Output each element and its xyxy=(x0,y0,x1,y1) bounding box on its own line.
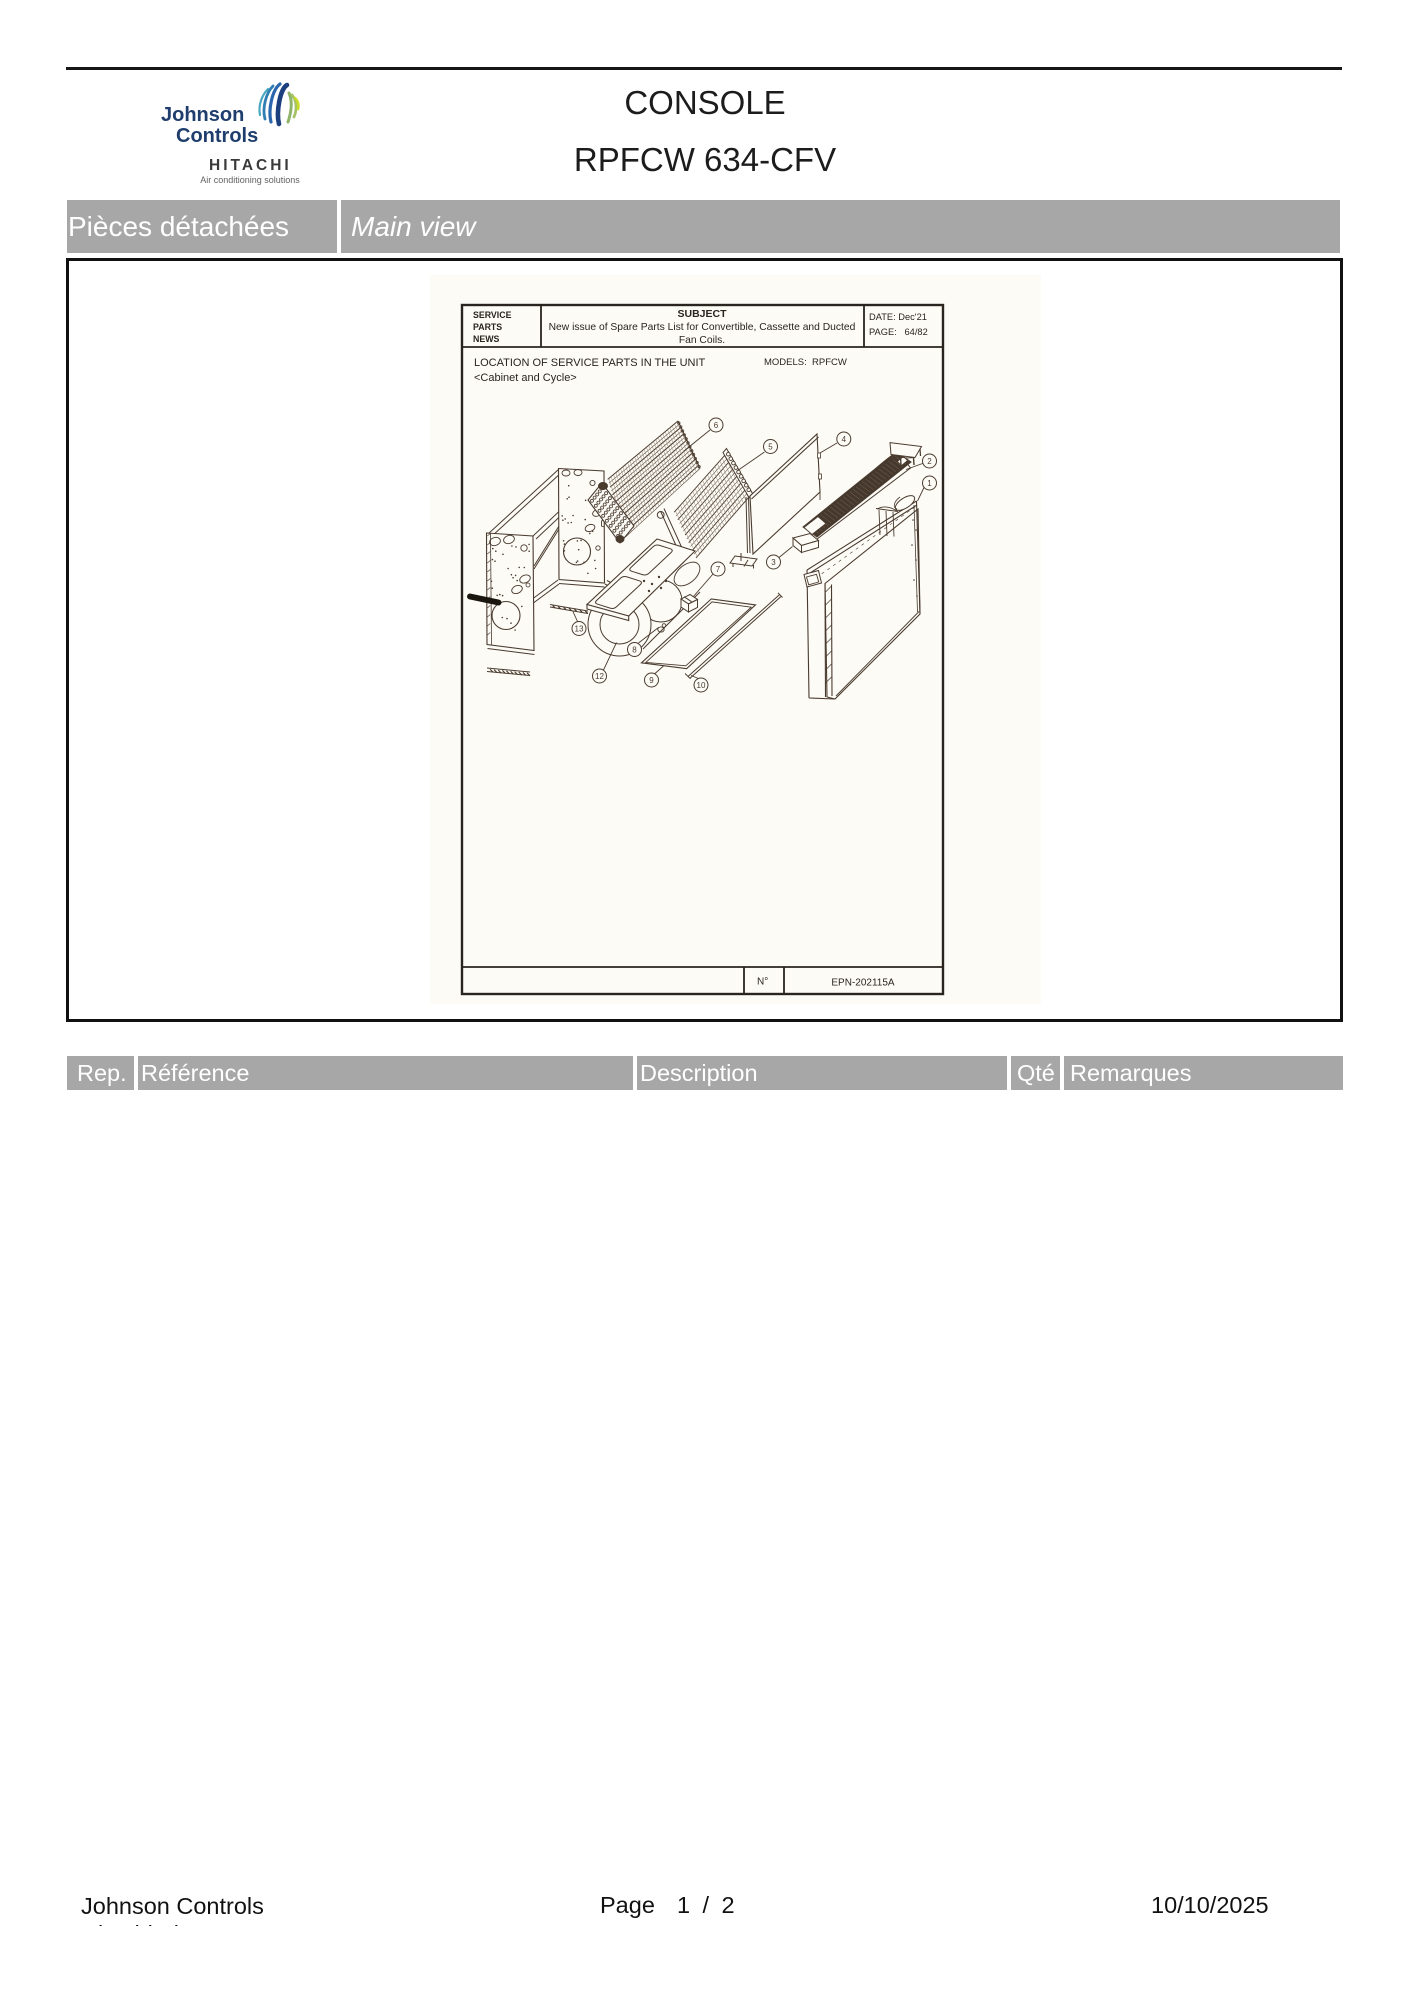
svg-text:7: 7 xyxy=(716,565,721,574)
svg-text:LOCATION OF SERVICE PARTS IN T: LOCATION OF SERVICE PARTS IN THE UNIT xyxy=(474,357,706,369)
svg-text:New issue of Spare Parts List: New issue of Spare Parts List for Conver… xyxy=(549,322,856,333)
svg-text:DATE: Dec'21: DATE: Dec'21 xyxy=(869,312,927,322)
svg-text:3: 3 xyxy=(771,558,776,567)
svg-text:PARTS: PARTS xyxy=(473,322,502,332)
svg-text:<Cabinet and Cycle>: <Cabinet and Cycle> xyxy=(474,372,577,384)
svg-text:NEWS: NEWS xyxy=(473,334,500,344)
svg-text:SERVICE: SERVICE xyxy=(473,310,512,320)
svg-text:2: 2 xyxy=(927,457,932,466)
svg-text:6: 6 xyxy=(714,421,719,430)
svg-text:12: 12 xyxy=(595,672,604,681)
svg-text:9: 9 xyxy=(649,676,654,685)
svg-text:4: 4 xyxy=(842,435,847,444)
svg-text:EPN-202115A: EPN-202115A xyxy=(831,978,895,989)
svg-text:5: 5 xyxy=(768,442,773,451)
svg-text:8: 8 xyxy=(632,645,637,654)
svg-text:10: 10 xyxy=(697,681,706,690)
svg-text:1: 1 xyxy=(927,479,932,488)
svg-text:Fan Coils.: Fan Coils. xyxy=(679,335,725,346)
svg-text:N°: N° xyxy=(757,977,768,988)
svg-text:SUBJECT: SUBJECT xyxy=(677,308,727,320)
svg-text:MODELS: RPFCW: MODELS: RPFCW xyxy=(764,357,847,368)
svg-text:PAGE: 64/82: PAGE: 64/82 xyxy=(869,327,928,337)
svg-text:13: 13 xyxy=(575,624,584,633)
